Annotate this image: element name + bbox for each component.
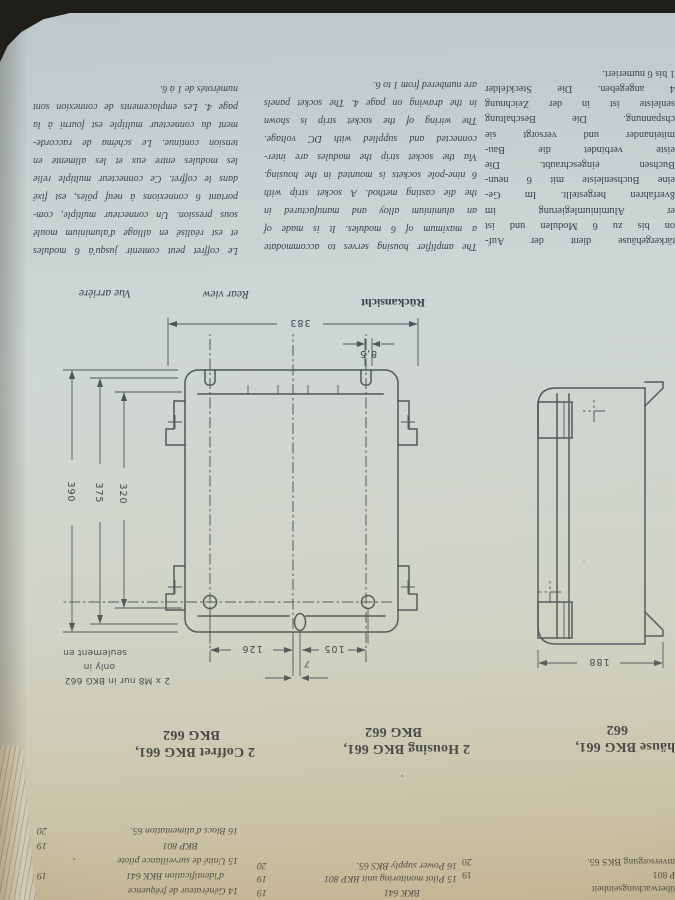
text-line: numérotés de 1 à 6. bbox=[33, 79, 238, 97]
text-line: the die casting method. A socket strip w… bbox=[264, 183, 477, 201]
text-line: a maximum of 6 modules. It is made of bbox=[264, 219, 477, 237]
view-label-german: Rückansicht bbox=[361, 295, 425, 310]
center-lines bbox=[63, 334, 392, 668]
text-line: senleiste ist in der Zeichnung bbox=[485, 96, 675, 111]
paragraph-german: tärkergehäuse dient der Auf- on bis zu 6… bbox=[485, 66, 675, 248]
text-line: connected and supplied with DC voltage. bbox=[264, 129, 477, 147]
side-view: 188 bbox=[538, 382, 663, 668]
dim-375: 375 bbox=[93, 482, 104, 503]
text-line: The wiring of the socket strip is shown bbox=[264, 111, 477, 129]
dimension-105-126: 105 126 bbox=[210, 609, 368, 676]
dim-188: 188 bbox=[588, 656, 609, 667]
text-line: in the drawing on page 4. The socket pan… bbox=[264, 93, 477, 111]
note-line3: seulement en bbox=[63, 647, 127, 657]
m8-note: 2 x M8 nur in BKG 662 only in seulement … bbox=[63, 647, 170, 685]
side-foot bbox=[645, 612, 663, 636]
oval-hole bbox=[295, 614, 306, 631]
text-line: ßverfahren hergestellt. Im Ge- bbox=[485, 187, 675, 202]
height-dimensions: 390 375 320 bbox=[63, 370, 182, 632]
text-line: et est réalisé en alliage d'aluminium mo… bbox=[33, 223, 238, 241]
side-foot bbox=[645, 382, 663, 406]
printed-page: 14 Kennfrequenzgenerator überwachungsein… bbox=[0, 0, 675, 900]
text-line: portant 6 connexions à neuf pôles, est f… bbox=[33, 187, 238, 205]
text-line: 4 angegeben. Die Steckfelder bbox=[485, 81, 675, 96]
view-label-french: Vue arrière bbox=[79, 287, 131, 299]
photo-speck bbox=[73, 858, 75, 860]
text-line: les modules entre eux et les alimente en bbox=[33, 151, 238, 169]
text-line: tension continue. Le schéma de raccorde- bbox=[33, 133, 238, 151]
text-line: 1 bis 6 numeriert. bbox=[485, 66, 675, 81]
text-line: tärkergehäuse dient der Auf- bbox=[485, 233, 675, 248]
text-line: ment du connecteur multiple est fourni à… bbox=[33, 115, 238, 133]
text-line: Buchsen eingeschraubt. Die bbox=[485, 157, 675, 172]
dimension-7: 7 bbox=[265, 658, 328, 681]
text-line: The amplifier housing serves to accommod… bbox=[264, 237, 477, 255]
text-line: Via the socket strip the modules are int… bbox=[264, 147, 477, 165]
dim-390: 390 bbox=[65, 481, 76, 502]
text-line: eiste verbindet die Bau- bbox=[485, 142, 675, 157]
note-line2: only in bbox=[83, 661, 115, 671]
view-label-english: Rear view bbox=[203, 288, 249, 300]
text-line: an aluminium alloy and manufactured in bbox=[264, 201, 477, 219]
dimension-8-5: 8,5 bbox=[343, 338, 394, 366]
text-line: 6 nine-pole sockets is mounted in the ho… bbox=[264, 165, 477, 183]
photo-speck bbox=[401, 775, 403, 777]
text-line: chspannung. Die Beschaltung bbox=[485, 111, 675, 126]
photographed-catalog-page: 14 Kennfrequenzgenerator überwachungsein… bbox=[0, 0, 675, 900]
dim-320: 320 bbox=[117, 483, 128, 504]
text-line: sous pression. Un connecteur multiple, c… bbox=[33, 205, 238, 223]
dim-8-5: 8,5 bbox=[359, 348, 377, 359]
dim-383: 383 bbox=[289, 317, 310, 328]
lug-cross-marks bbox=[168, 415, 415, 594]
text-line: miteinander und versorgt sie bbox=[485, 126, 675, 141]
photo-speck bbox=[583, 560, 585, 562]
text-line: are numbered from 1 to 6. bbox=[264, 75, 477, 93]
paragraph-french: Le coffret peut contenir jusqu'à 6 modul… bbox=[33, 79, 238, 259]
paragraph-english: The amplifier housing serves to accommod… bbox=[264, 75, 477, 255]
text-line: page 4. Les emplacements de connexion so… bbox=[33, 97, 238, 115]
dim-105: 105 bbox=[323, 643, 344, 654]
note-line1: 2 x M8 nur in BKG 662 bbox=[65, 675, 170, 685]
dim-126: 126 bbox=[241, 643, 262, 654]
text-line: eine Buchsenleiste mit 6 neun- bbox=[485, 172, 675, 187]
text-line: Le coffret peut contenir jusqu'à 6 modul… bbox=[33, 241, 238, 259]
dim-7: 7 bbox=[304, 658, 310, 668]
rear-view-outline bbox=[166, 370, 417, 632]
text-line: on bis zu 6 Modulen und ist bbox=[485, 218, 675, 233]
text-line: er Aluminiumlegierung im bbox=[485, 202, 675, 217]
text-line: dans le coffret. Ce connecteur multiple … bbox=[33, 169, 238, 187]
